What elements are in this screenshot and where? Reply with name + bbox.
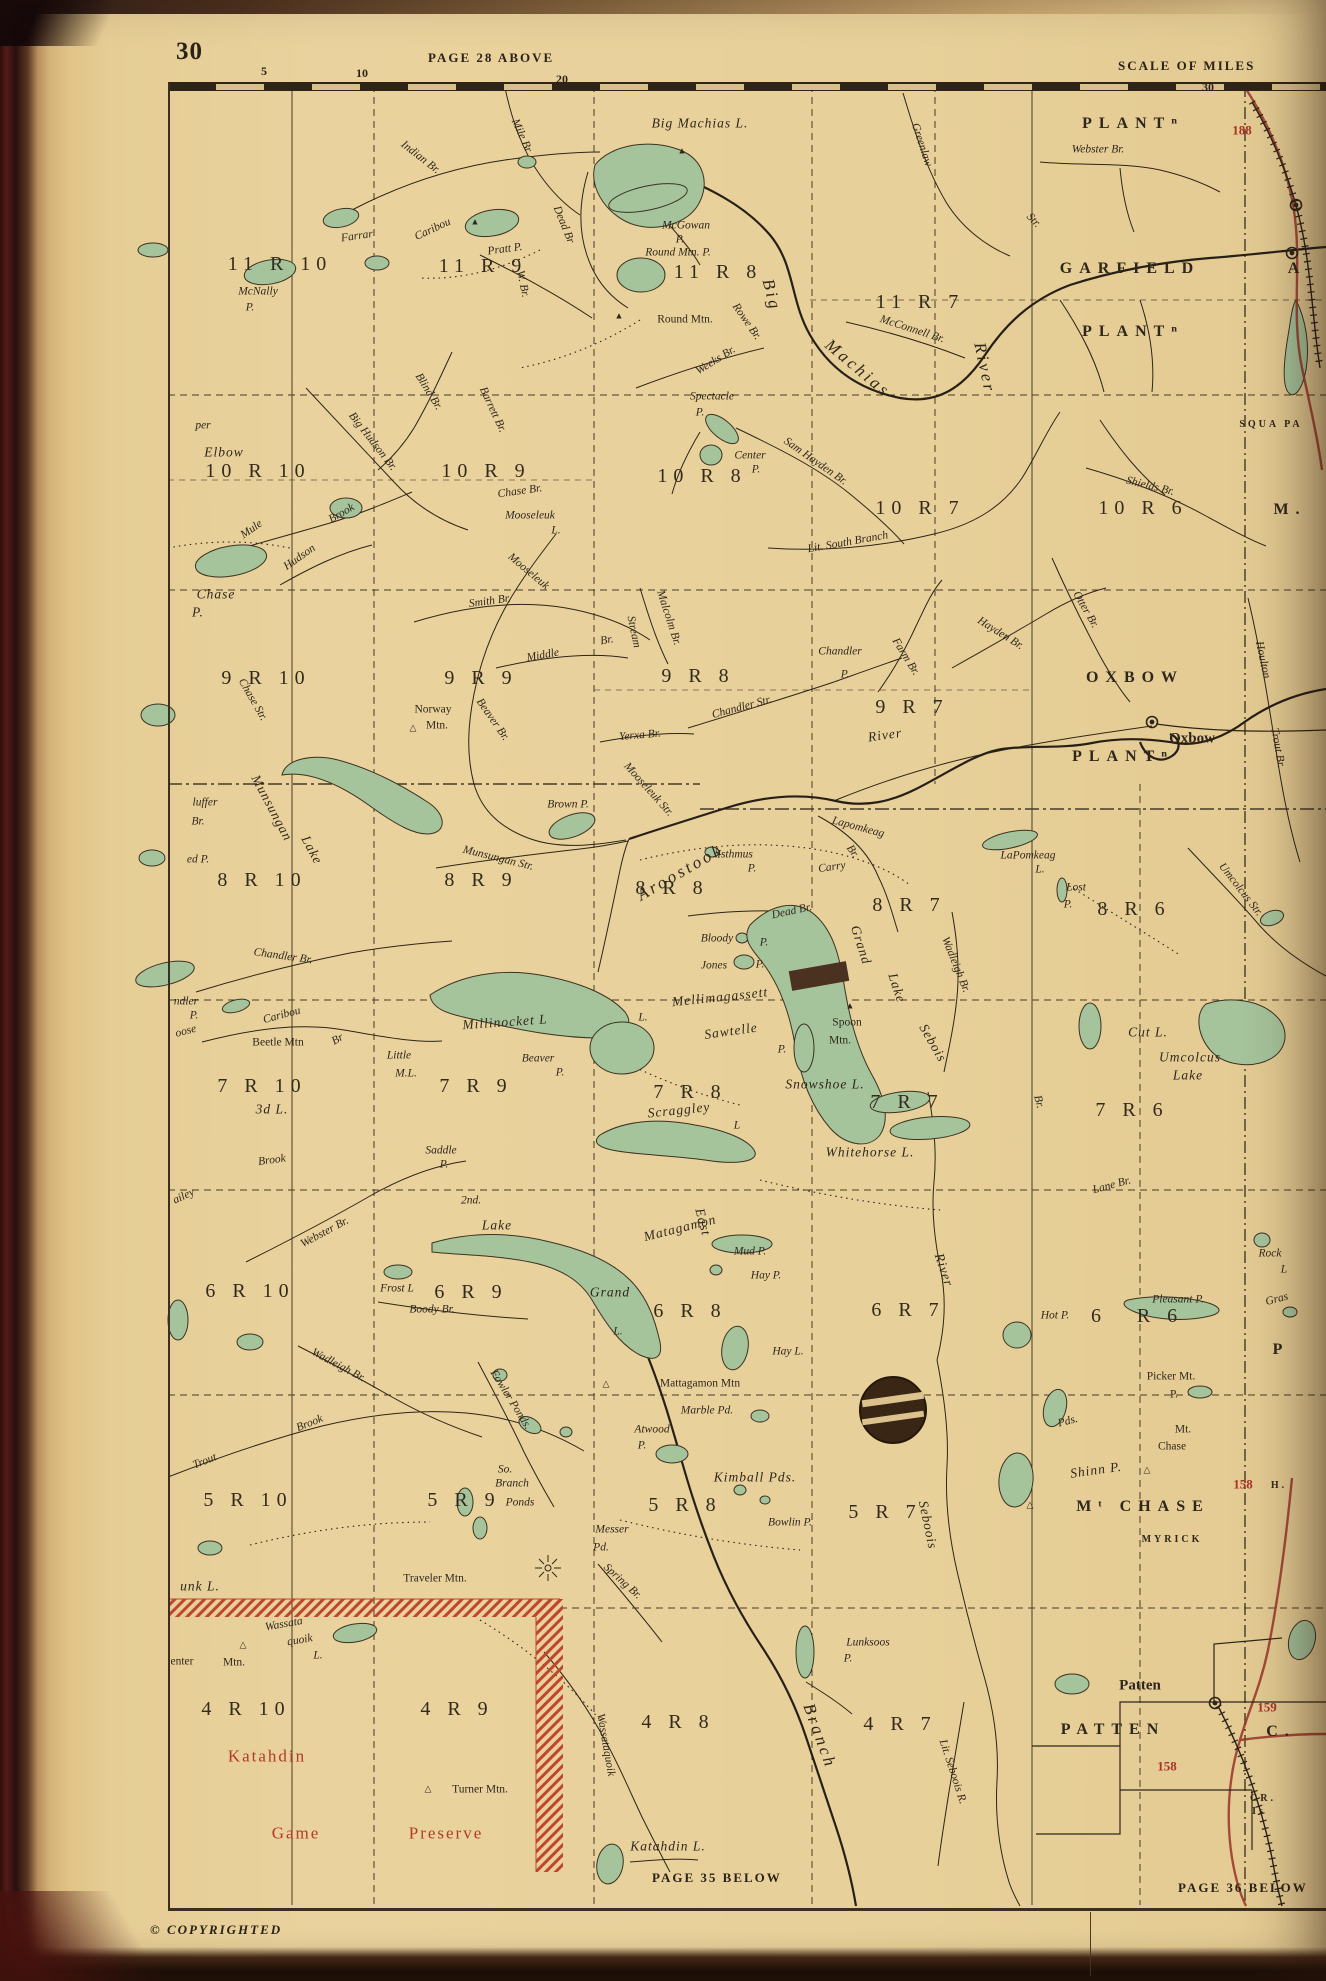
water-feature-label: L. <box>638 1012 647 1024</box>
mountain-icon: ▲ <box>678 147 687 156</box>
water-feature-label: P. <box>440 1159 448 1171</box>
town-name-label: PATTEN <box>1061 1722 1166 1738</box>
water-feature-label: Hay P. <box>751 1270 781 1282</box>
mountain-icon: ▲ <box>615 312 624 321</box>
water-feature-label: P. <box>756 959 764 971</box>
township-label: 5 R 8 <box>648 1495 721 1515</box>
water-feature-label: Pleasant P. <box>1152 1294 1204 1306</box>
township-label: 5 R 10 <box>203 1490 292 1510</box>
township-label: 9 R 7 <box>875 697 948 717</box>
township-label: 9 R 8 <box>661 666 734 686</box>
water-feature-label: L. <box>551 525 560 537</box>
scale-tick: 30 <box>1202 80 1214 95</box>
township-label: 5 R 7 <box>848 1502 921 1522</box>
mountain-icon: △ <box>1027 1501 1034 1510</box>
water-feature-label: P. <box>638 1440 646 1452</box>
village-label: Patten <box>1119 1679 1161 1694</box>
water-feature-label: Branch <box>495 1478 529 1490</box>
mountain-icon: △ <box>1144 1466 1151 1475</box>
water-feature-label: ed P. <box>187 854 209 866</box>
town-name-label: M. <box>1273 502 1306 518</box>
water-feature-label: unk L. <box>180 1579 220 1593</box>
water-feature-label: Center <box>734 450 765 462</box>
water-feature-label: Beaver <box>522 1053 555 1065</box>
water-feature-label: Umcolcus <box>1159 1050 1221 1064</box>
adjacent-page-note-top: PAGE 28 ABOVE <box>428 50 554 66</box>
township-label: 10 R 7 <box>875 498 964 518</box>
water-feature-label: McNally <box>238 286 278 298</box>
water-feature-label: luffer <box>193 797 218 809</box>
water-feature-label: P. <box>844 1653 852 1665</box>
water-feature-label: Lake <box>1173 1068 1203 1082</box>
water-feature-label: P. <box>190 1010 198 1022</box>
town-name-label: CR. <box>1250 1794 1276 1804</box>
mountain-icon: ▲ <box>471 218 480 227</box>
water-feature-label: L. <box>1035 864 1044 876</box>
road-number-label: 158 <box>1233 1478 1253 1491</box>
town-name-label: C. <box>1266 1724 1296 1740</box>
terrain-feature-label: Beetle Mtn <box>252 1037 303 1049</box>
township-label: 6 R 10 <box>205 1281 294 1301</box>
water-feature-label: Big Machias L. <box>652 116 749 130</box>
township-label: 4 R 9 <box>420 1699 493 1719</box>
township-label: 8 R 9 <box>444 870 517 890</box>
water-feature-label: P. <box>752 464 760 476</box>
town-name-label: P <box>1273 1342 1290 1358</box>
water-feature-label: M.L. <box>395 1068 417 1080</box>
water-feature-label: Rock <box>1259 1248 1282 1260</box>
road-number-label: 159 <box>1257 1701 1277 1714</box>
township-label: 10 R 6 <box>1098 498 1187 518</box>
town-name-label: SQUA PA <box>1239 420 1302 430</box>
town-name-label: Mᵗ CHASE <box>1076 1499 1210 1515</box>
township-label: 7 R 9 <box>439 1076 512 1096</box>
township-label: 11 R 10 <box>228 254 333 274</box>
water-feature-label: Atwood <box>634 1424 669 1436</box>
water-feature-label: P. <box>676 234 684 246</box>
water-feature-label: Lost <box>1066 882 1086 894</box>
water-feature-label: LaPomkeag <box>1001 850 1056 862</box>
scale-tick: 20 <box>556 72 568 87</box>
water-feature-label: Little <box>387 1050 411 1062</box>
scale-of-miles-label: SCALE OF MILES <box>1118 58 1255 74</box>
terrain-feature-label: Spoon <box>832 1017 861 1029</box>
town-name-label: A <box>1288 261 1307 277</box>
scale-tick: 5 <box>261 64 267 79</box>
town-name-label: PLANTⁿ <box>1082 324 1184 340</box>
mountain-icon: △ <box>603 1380 610 1389</box>
terrain-feature-label: Norway <box>414 704 451 716</box>
water-feature-label: L. <box>313 1650 322 1662</box>
water-feature-label: L <box>734 1120 740 1132</box>
water-feature-label: P. <box>760 937 768 949</box>
terrain-feature-label: Mtn. <box>223 1657 245 1669</box>
township-label: 4 R 7 <box>863 1714 936 1734</box>
game-preserve-label: Game <box>272 1825 321 1842</box>
water-feature-label: Br. <box>600 634 615 648</box>
township-label: 10 R 8 <box>657 466 746 486</box>
terrain-feature-label: enter <box>171 1656 194 1668</box>
water-feature-label: Isthmus <box>717 849 753 861</box>
water-feature-label: Ponds <box>506 1497 535 1509</box>
water-feature-label: ndler <box>174 996 198 1008</box>
water-feature-label: P. <box>192 605 204 619</box>
terrain-feature-label: Turner Mtn. <box>452 1784 508 1796</box>
township-label: 4 R 10 <box>201 1699 290 1719</box>
water-feature-label: Grand <box>590 1285 630 1299</box>
village-label: Oxbow <box>1169 732 1215 747</box>
township-label: 6 R 9 <box>434 1282 507 1302</box>
water-feature-label: Webster Br. <box>1072 144 1125 156</box>
township-label: 5 R 9 <box>427 1490 500 1510</box>
water-feature-label: Hot P. <box>1041 1310 1070 1322</box>
township-label: 10 R 10 <box>205 461 310 481</box>
town-name-label: MYRICK <box>1142 1535 1203 1545</box>
terrain-feature-label: Mt. <box>1175 1424 1191 1436</box>
terrain-feature-label: Mtn. <box>829 1035 851 1047</box>
township-label: 11 R 8 <box>674 262 763 282</box>
township-label: 4 R 8 <box>641 1712 714 1732</box>
township-label: 7 R 7 <box>870 1092 943 1112</box>
mountain-icon: △ <box>410 724 417 733</box>
water-feature-label: L. <box>613 1326 622 1338</box>
mountain-icon: △ <box>425 1785 432 1794</box>
water-feature-label: P. <box>246 302 254 314</box>
terrain-feature-label: Mattagamon Mtn <box>660 1378 740 1390</box>
water-feature-label: Kimball Pds. <box>714 1470 797 1484</box>
township-label: 7 R 8 <box>653 1082 726 1102</box>
water-feature-label: P. <box>778 1044 786 1056</box>
terrain-feature-label: Traveler Mtn. <box>403 1573 466 1585</box>
town-name-label: Is <box>1252 1807 1266 1817</box>
water-feature-label: Whitehorse L. <box>826 1145 915 1159</box>
water-feature-label: Saddle <box>425 1145 456 1157</box>
water-feature-label: Lunksoos <box>846 1637 889 1649</box>
water-feature-label: L <box>1281 1264 1287 1276</box>
terrain-feature-label: Picker Mt. <box>1147 1371 1196 1383</box>
water-feature-label: McGowan <box>662 220 710 232</box>
water-feature-label: Chase <box>197 587 236 601</box>
water-feature-label: Br. <box>191 816 204 828</box>
water-feature-label: Hay L. <box>772 1346 803 1358</box>
scale-tick: 10 <box>356 66 368 81</box>
road-number-label: 188 <box>1232 124 1252 137</box>
water-feature-label: Round Mtn. P. <box>645 247 711 259</box>
township-label: 7 R 10 <box>217 1076 306 1096</box>
township-label: 8 R 6 <box>1097 899 1170 919</box>
terrain-feature-label: P. <box>1170 1389 1178 1401</box>
game-preserve-label: Preserve <box>409 1825 484 1842</box>
book-edge-top <box>0 0 1326 14</box>
township-label: 10 R 9 <box>441 461 530 481</box>
mountain-icon: ▲ <box>846 1002 855 1011</box>
water-feature-label: Mud P. <box>734 1246 766 1258</box>
water-feature-label: Mooseleuk <box>505 510 555 522</box>
water-feature-label: P. <box>556 1067 564 1079</box>
town-name-label: PLANTⁿ <box>1082 116 1184 132</box>
water-feature-label: Bowlin P. <box>768 1517 812 1529</box>
terrain-feature-label: Round Mtn. <box>657 314 713 326</box>
town-name-label: OXBOW <box>1086 670 1184 686</box>
water-feature-label: 2nd. <box>461 1195 481 1207</box>
water-feature-label: Boody Br. <box>409 1304 454 1316</box>
town-name-label: GARFIELD <box>1060 261 1200 277</box>
water-feature-label: Marble Pd. <box>681 1405 733 1417</box>
footer-divider <box>1090 1912 1091 1976</box>
township-label: 9 R 10 <box>221 668 310 688</box>
water-feature-label: Spectacle <box>690 391 734 403</box>
water-feature-label: Bloody <box>701 933 734 945</box>
terrain-feature-label: Mtn. <box>426 720 448 732</box>
page-number: 30 <box>176 38 203 66</box>
town-name-label: H. <box>1271 1481 1287 1491</box>
water-feature-label: Chandler <box>818 646 861 658</box>
water-feature-label: Katahdin L. <box>630 1839 706 1853</box>
water-feature-label: 3d L. <box>256 1102 289 1116</box>
township-label: 8 R 7 <box>872 895 945 915</box>
township-label: 7 R 6 <box>1095 1100 1168 1120</box>
adjacent-page-note-right: PAGE 36 BELOW <box>1178 1880 1308 1896</box>
water-feature-label: P. <box>1064 899 1072 911</box>
game-preserve-label: Katahdin <box>228 1748 306 1765</box>
book-corner <box>0 0 170 46</box>
water-feature-label: P. <box>841 669 849 681</box>
water-feature-label: P. <box>696 407 704 419</box>
terrain-feature-label: Chase <box>1158 1441 1186 1453</box>
township-label: 6 R 7 <box>871 1300 944 1320</box>
water-feature-label: Snowshoe L. <box>785 1077 864 1091</box>
township-label: R 6 <box>1137 1306 1183 1326</box>
adjacent-page-note-left: PAGE 35 BELOW <box>652 1870 782 1886</box>
water-feature-label: P. <box>748 863 756 875</box>
water-feature-label: Messer <box>595 1524 628 1536</box>
water-feature-label: Cut L. <box>1128 1025 1168 1039</box>
township-label: 9 R 9 <box>444 668 517 688</box>
water-feature-label: Pd. <box>593 1542 609 1554</box>
township-label: 6 R 8 <box>653 1301 726 1321</box>
water-feature-label: Lake <box>482 1218 512 1232</box>
water-feature-label: Frost L <box>380 1283 414 1295</box>
water-feature-label: Jones <box>701 960 727 972</box>
mountain-icon: △ <box>240 1641 247 1650</box>
township-label: 11 R 7 <box>876 292 965 312</box>
copyright-note: © COPYRIGHTED <box>150 1922 282 1938</box>
atlas-page: 30 PAGE 28 ABOVE SCALE OF MILES 5 10 20 … <box>0 0 1326 1981</box>
water-feature-label: So. <box>498 1464 512 1476</box>
water-feature-label: Elbow <box>204 445 244 459</box>
township-label: 8 R 10 <box>217 870 306 890</box>
town-name-label: PLANTⁿ <box>1072 749 1174 765</box>
water-feature-label: Brown P. <box>547 799 589 811</box>
township-label: 6 <box>1091 1306 1107 1326</box>
water-feature-label: per <box>195 420 210 432</box>
road-number-label: 158 <box>1157 1760 1177 1773</box>
